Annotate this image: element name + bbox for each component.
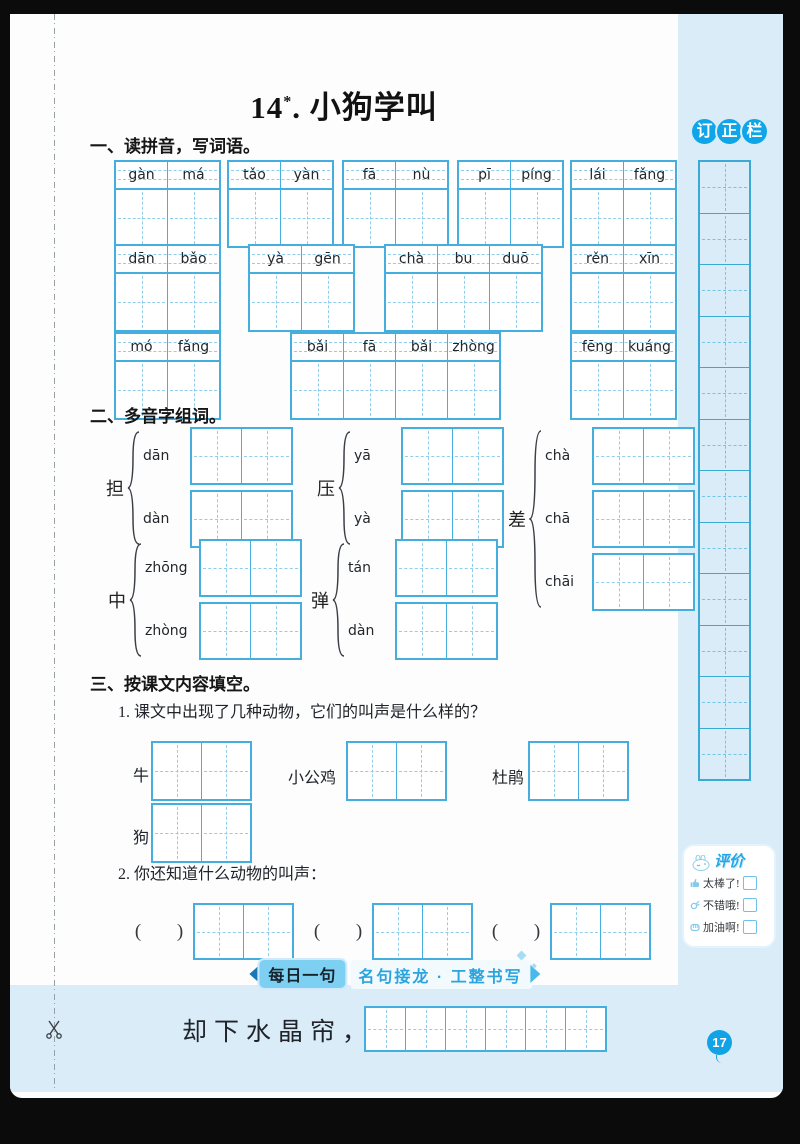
writing-square[interactable]: [250, 604, 300, 658]
reading-label: zhòng: [145, 623, 199, 639]
writing-square[interactable]: [395, 190, 447, 246]
pinyin-cell: fǎng: [623, 162, 675, 188]
reading-label: dàn: [348, 623, 395, 639]
animal-sound-slot: (): [489, 903, 651, 960]
writing-square[interactable]: [366, 1008, 405, 1050]
pinyin-cell: lái: [572, 162, 623, 188]
question2-text: 2. 你还知道什么动物的叫声：: [118, 860, 326, 884]
pinyin-cell: rěn: [572, 246, 623, 272]
writing-square[interactable]: [301, 274, 353, 330]
polyphone-char: 压: [317, 475, 335, 501]
writing-square[interactable]: [565, 1008, 605, 1050]
animal-sound-slot: (): [311, 903, 473, 960]
answer-write-box[interactable]: [372, 903, 473, 960]
reading-label: dān: [143, 448, 190, 464]
animal-label: 牛: [133, 762, 149, 786]
answer-write-box[interactable]: [346, 741, 447, 801]
pinyin-cell: gēn: [301, 246, 353, 272]
scissors-icon: [45, 1020, 63, 1039]
pinyin-cell: dān: [116, 246, 167, 272]
pinyin-cell: bu: [437, 246, 489, 272]
writing-square[interactable]: [229, 190, 280, 246]
correction-cell[interactable]: [700, 573, 749, 625]
evaluation-option-label: 加油啊!: [703, 919, 740, 935]
writing-square[interactable]: [452, 492, 502, 546]
pinyin-cell: pī: [459, 162, 510, 188]
animal-label: 狗: [133, 824, 149, 848]
writing-square[interactable]: [530, 743, 578, 799]
writing-square[interactable]: [243, 905, 292, 958]
word-write-box[interactable]: [395, 539, 498, 597]
brace-decoration: [529, 428, 543, 610]
writing-square[interactable]: [422, 905, 471, 958]
writing-square[interactable]: [192, 429, 241, 483]
writing-square[interactable]: [167, 190, 219, 246]
writing-square[interactable]: [397, 604, 446, 658]
polyphone-char: 中: [108, 587, 126, 613]
writing-square[interactable]: [572, 190, 623, 246]
writing-square[interactable]: [396, 743, 445, 799]
cut-line: [54, 14, 55, 1092]
worksheet-page: 14*. 小狗学叫 一、读拼音，写词语。 gànmá tǎoyàn fānù p…: [10, 14, 783, 1098]
writing-square[interactable]: [250, 274, 301, 330]
lesson-number: 14: [250, 90, 283, 125]
pinyin-cell: nù: [395, 162, 447, 188]
word-write-box[interactable]: [401, 427, 504, 485]
correction-cell[interactable]: [700, 162, 749, 213]
writing-square[interactable]: [572, 362, 623, 418]
answer-write-box[interactable]: [193, 903, 294, 960]
pinyin-cell: píng: [510, 162, 562, 188]
writing-square[interactable]: [395, 362, 447, 418]
pinyin-cell: tǎo: [229, 162, 280, 188]
writing-square[interactable]: [201, 743, 250, 799]
writing-square[interactable]: [403, 492, 452, 546]
paren-close: ): [353, 921, 365, 943]
polyphone-char: 担: [106, 475, 124, 501]
paren-close: ): [531, 921, 543, 943]
paren-open: (: [132, 921, 144, 943]
correction-cell[interactable]: [700, 728, 749, 780]
pinyin-cell: fǎng: [167, 334, 219, 360]
reading-label: dàn: [143, 511, 190, 527]
writing-square[interactable]: [292, 362, 343, 418]
animal-sound-slot: (): [132, 903, 294, 960]
writing-square[interactable]: [116, 274, 167, 330]
writing-square[interactable]: [343, 362, 395, 418]
writing-square[interactable]: [485, 1008, 525, 1050]
word-write-box[interactable]: [190, 427, 293, 485]
correction-cell[interactable]: [700, 264, 749, 316]
brace-decoration: [332, 541, 346, 659]
polyphone-group: 中 zhōng zhòng: [108, 539, 302, 660]
word-write-box[interactable]: [199, 539, 302, 597]
writing-square[interactable]: [445, 1008, 485, 1050]
correction-cell[interactable]: [700, 419, 749, 471]
section1-heading: 一、读拼音，写词语。: [90, 132, 260, 157]
pinyin-cell: zhòng: [447, 334, 499, 360]
section3-heading: 三、按课文内容填空。: [90, 670, 260, 695]
polyphone-group: 担 dān dàn: [106, 427, 293, 548]
pinyin-cell: yàn: [280, 162, 332, 188]
writing-square[interactable]: [623, 362, 675, 418]
writing-square[interactable]: [348, 743, 396, 799]
question1-text: 1. 课文中出现了几种动物，它们的叫声是什么样的？: [118, 698, 486, 722]
writing-square[interactable]: [643, 555, 693, 609]
pinyin-cell: mó: [116, 334, 167, 360]
page-number-balloon: 17: [707, 1030, 732, 1055]
writing-square[interactable]: [405, 1008, 445, 1050]
writing-square[interactable]: [201, 805, 250, 861]
writing-square[interactable]: [446, 604, 496, 658]
writing-square[interactable]: [397, 541, 446, 595]
writing-square[interactable]: [374, 905, 422, 958]
reading-label: chā: [545, 511, 592, 527]
pinyin-word-box[interactable]: fānù: [342, 160, 449, 248]
daily-sentence-write-grid[interactable]: [364, 1006, 607, 1052]
pinyin-word-box[interactable]: rěnxīn: [570, 244, 677, 332]
writing-square[interactable]: [623, 274, 675, 330]
reading-label: zhōng: [145, 560, 199, 576]
writing-square[interactable]: [452, 429, 502, 483]
correction-cell[interactable]: [700, 625, 749, 677]
paren-close: ): [174, 921, 186, 943]
fist-icon: [690, 922, 700, 932]
banner-subtitle: 名句接龙 · 工整书写: [350, 960, 532, 989]
paren-open: (: [489, 921, 501, 943]
reading-label: yà: [354, 511, 401, 527]
evaluation-checkbox[interactable]: [743, 920, 757, 934]
correction-column-title: 订 正 栏: [690, 117, 769, 146]
writing-square[interactable]: [195, 905, 243, 958]
evaluation-panel: 评价 太棒了! 不错哦! 加油啊!: [682, 844, 776, 948]
pinyin-cell: fēng: [572, 334, 623, 360]
writing-square[interactable]: [201, 604, 250, 658]
page-title: 14*. 小狗学叫: [10, 82, 678, 127]
daily-sentence-text: 却下水晶帘，: [182, 1012, 374, 1048]
pinyin-word-box[interactable]: bǎifābǎizhòng: [290, 332, 501, 420]
word-write-box[interactable]: [592, 490, 695, 548]
writing-square[interactable]: [116, 190, 167, 246]
writing-square[interactable]: [572, 274, 623, 330]
daily-sentence-banner: 每日一句 名句接龙 · 工整书写: [249, 960, 540, 988]
writing-square[interactable]: [552, 905, 600, 958]
word-write-box[interactable]: [395, 602, 498, 660]
word-write-box[interactable]: [592, 553, 695, 611]
pinyin-cell: kuáng: [623, 334, 675, 360]
thumbs-up-icon: [690, 878, 700, 888]
word-write-box[interactable]: [592, 427, 695, 485]
pinyin-word-box[interactable]: fēngkuáng: [570, 332, 677, 420]
writing-square[interactable]: [525, 1008, 565, 1050]
brace-decoration: [338, 429, 352, 547]
writing-square[interactable]: [643, 492, 693, 546]
writing-square[interactable]: [459, 190, 510, 246]
brace-decoration: [129, 541, 143, 659]
correction-cell[interactable]: [700, 367, 749, 419]
writing-square[interactable]: [600, 905, 649, 958]
pinyin-cell: chà: [386, 246, 437, 272]
word-write-box[interactable]: [199, 602, 302, 660]
ok-hand-icon: [690, 900, 700, 910]
evaluation-checkbox[interactable]: [743, 876, 757, 890]
writing-square[interactable]: [167, 274, 219, 330]
polyphone-group: 弹 tán dàn: [311, 539, 498, 660]
writing-square[interactable]: [153, 805, 201, 861]
writing-square[interactable]: [594, 555, 643, 609]
correction-cell[interactable]: [700, 316, 749, 368]
pinyin-cell: bǎi: [395, 334, 447, 360]
writing-square[interactable]: [403, 429, 452, 483]
writing-square[interactable]: [643, 429, 693, 483]
reading-label: chāi: [545, 574, 592, 590]
pinyin-cell: fā: [344, 162, 395, 188]
writing-square[interactable]: [241, 492, 291, 546]
lesson-name: . 小狗学叫: [292, 90, 438, 125]
pinyin-cell: bǎi: [292, 334, 343, 360]
evaluation-title: 评价: [714, 850, 744, 871]
evaluation-option-label: 太棒了!: [703, 875, 740, 891]
correction-writing-strip[interactable]: [698, 160, 751, 781]
correction-title-char: 栏: [740, 117, 769, 146]
writing-square[interactable]: [437, 274, 489, 330]
correction-cell[interactable]: [700, 676, 749, 728]
pinyin-word-box[interactable]: láifǎng: [570, 160, 677, 248]
pinyin-cell: duō: [489, 246, 541, 272]
writing-square[interactable]: [510, 190, 562, 246]
pinyin-word-box[interactable]: pīpíng: [457, 160, 564, 248]
correction-cell[interactable]: [700, 213, 749, 265]
lesson-star: *: [283, 94, 292, 111]
polyphone-char: 差: [508, 506, 526, 532]
section2-heading: 二、多音字组词。: [90, 402, 226, 427]
writing-square[interactable]: [594, 492, 643, 546]
correction-cell[interactable]: [700, 470, 749, 522]
pinyin-cell: fā: [343, 334, 395, 360]
polyphone-group: 差 chà chā chāi: [508, 427, 695, 611]
reading-label: yā: [354, 448, 401, 464]
pinyin-word-box[interactable]: dānbǎo: [114, 244, 221, 332]
writing-square[interactable]: [578, 743, 627, 799]
daily-sentence-tab: 每日一句: [257, 958, 347, 990]
page-number: 17: [712, 1035, 726, 1050]
animal-label: 小公鸡: [288, 764, 336, 788]
writing-square[interactable]: [153, 743, 201, 799]
writing-square[interactable]: [623, 190, 675, 246]
writing-square[interactable]: [447, 362, 499, 418]
pinyin-word-box[interactable]: yàgēn: [248, 244, 355, 332]
writing-square[interactable]: [386, 274, 437, 330]
writing-square[interactable]: [250, 541, 300, 595]
writing-square[interactable]: [201, 541, 250, 595]
pinyin-cell: yà: [250, 246, 301, 272]
evaluation-option-label: 不错哦!: [703, 897, 740, 913]
writing-square[interactable]: [446, 541, 496, 595]
rabbit-icon: [690, 855, 712, 871]
writing-square[interactable]: [192, 492, 241, 546]
polyphone-char: 弹: [311, 587, 329, 613]
animal-label: 杜鹃: [492, 764, 524, 788]
brace-decoration: [127, 429, 141, 547]
answer-write-box[interactable]: [550, 903, 651, 960]
answer-write-box[interactable]: [151, 741, 252, 801]
answer-write-box[interactable]: [151, 803, 252, 863]
pinyin-cell: xīn: [623, 246, 675, 272]
writing-square[interactable]: [280, 190, 332, 246]
writing-square[interactable]: [489, 274, 541, 330]
answer-write-box[interactable]: [528, 741, 629, 801]
pinyin-word-box[interactable]: chàbuduō: [384, 244, 543, 332]
correction-cell[interactable]: [700, 522, 749, 574]
pinyin-cell: má: [167, 162, 219, 188]
reading-label: tán: [348, 560, 395, 576]
writing-square[interactable]: [241, 429, 291, 483]
paren-open: (: [311, 921, 323, 943]
pinyin-word-box[interactable]: tǎoyàn: [227, 160, 334, 248]
polyphone-group: 压 yā yà: [317, 427, 504, 548]
pinyin-cell: bǎo: [167, 246, 219, 272]
evaluation-checkbox[interactable]: [743, 898, 757, 912]
pinyin-word-box[interactable]: gànmá: [114, 160, 221, 248]
writing-square[interactable]: [344, 190, 395, 246]
pinyin-cell: gàn: [116, 162, 167, 188]
writing-square[interactable]: [594, 429, 643, 483]
reading-label: chà: [545, 448, 592, 464]
